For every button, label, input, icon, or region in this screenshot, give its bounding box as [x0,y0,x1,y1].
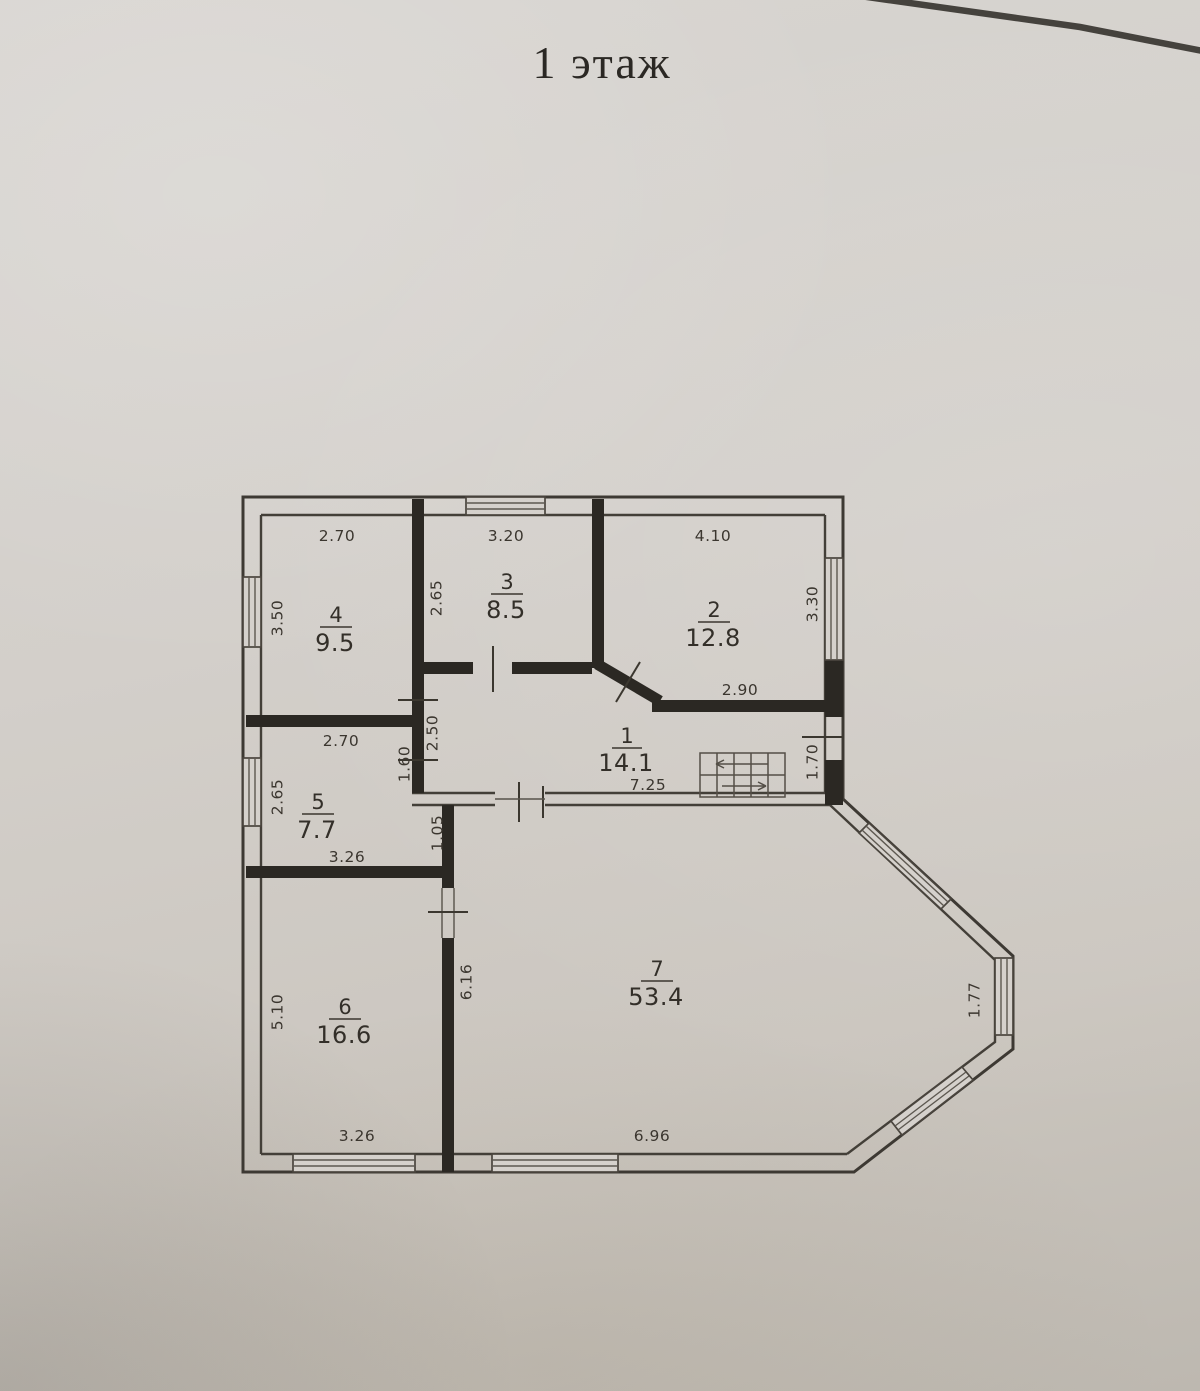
floor-title: 1 этаж [532,37,671,88]
room-1-number: 1 [620,724,633,748]
room-2-number: 2 [707,598,720,622]
dim-room1-right: 1.70 [803,744,821,781]
window-bay-upper-diagonal [859,823,951,909]
dim-room2-top: 4.10 [695,527,732,545]
floor-plan-photo: 1 этаж [0,0,1200,1391]
dim-room5-bottom: 3.26 [329,848,366,866]
window-bay-right [995,958,1013,1035]
window-bay-lower-diagonal [891,1067,973,1135]
window-bottom-room6 [293,1154,415,1172]
dim-room7-bottom: 6.96 [634,1127,671,1145]
dim-room6-left: 5.10 [268,994,286,1031]
dim-room3-top: 3.20 [488,527,525,545]
floor-plan-drawing: 1 этаж [0,0,1200,1391]
dim-room1-left: 2.50 [423,715,441,752]
dim-room2-right: 3.30 [803,586,821,623]
window-top-room3 [466,497,545,515]
dimension-ticks [398,646,843,912]
room-4-number: 4 [329,603,342,627]
dim-room2-bottom: 2.90 [722,681,759,699]
dim-room4-left: 3.50 [268,600,286,637]
dim-room3-left: 2.65 [427,580,445,617]
paper-edge-line [846,0,1200,52]
room-5-area: 7.7 [297,816,337,844]
room-6-number: 6 [338,995,351,1019]
staircase [700,753,785,797]
window-left-room5 [243,758,261,826]
dim-room1-bottom: 7.25 [630,776,667,794]
dim-room6-bottom: 3.26 [339,1127,376,1145]
window-bottom-room7 [492,1154,618,1172]
dim-room4-top: 2.70 [319,527,356,545]
room-2-area: 12.8 [685,624,740,652]
dim-room5-right: 1.60 [395,746,413,783]
room-1-area: 14.1 [598,749,653,777]
room-6-area: 16.6 [316,1021,371,1049]
dim-room5-left: 2.65 [268,779,286,816]
dim-gap-room5-room7: 1.05 [428,815,446,852]
room-4-area: 9.5 [315,629,355,657]
window-right-room2 [825,558,843,660]
room-7-number: 7 [650,957,663,981]
dim-room5-top: 2.70 [323,732,360,750]
windows [243,497,1013,1172]
outer-walls [243,497,1013,1172]
room-5-number: 5 [311,790,324,814]
room-3-area: 8.5 [486,596,526,624]
room-7-area: 53.4 [628,983,683,1011]
room-3-number: 3 [500,570,513,594]
dim-bay-right: 1.77 [965,982,983,1019]
window-left-room4 [243,577,261,647]
dim-room6-right: 6.16 [457,964,475,1001]
